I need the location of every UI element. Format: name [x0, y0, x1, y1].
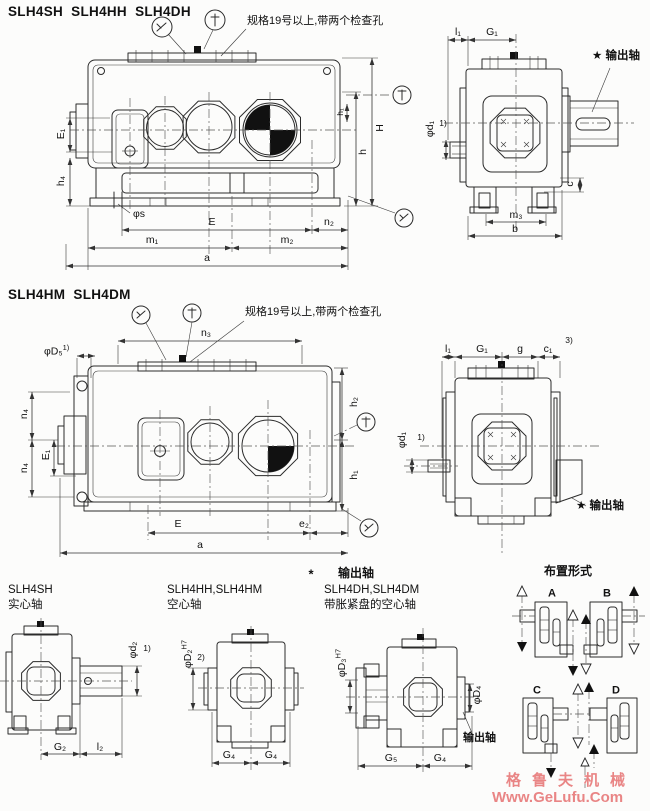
dim-c1: c₁: [544, 344, 553, 355]
col1-model-name: SLH4SH: [8, 585, 53, 597]
output-shaft-section-header: 输出轴: [338, 567, 374, 579]
dim-h1-mid: h₁: [349, 470, 360, 479]
dim-a-mid: a: [197, 540, 203, 551]
inspection-hole-note-top: 规格19号以上,带两个检查孔: [247, 16, 383, 27]
breather-plug-icon: [205, 10, 225, 30]
dim-G1: G₁: [486, 27, 498, 38]
dim-phi-d1-mid: φd₁: [397, 432, 408, 448]
page-title-top: SLH4SH SLH4HH SLH4DH: [8, 5, 191, 19]
watermark-brand: 格鲁夫机械: [506, 773, 636, 788]
catalog-page: SLH4SH SLH4HH SLH4DH 规格19号以上,带两个检查孔 E₁ h…: [0, 0, 650, 811]
oil-level-plug-icon: [393, 86, 411, 104]
inspection-plug-icon: [194, 46, 201, 53]
dim-G1-mid: G₁: [476, 344, 488, 355]
dim-phi-D5: φD₅1): [44, 344, 69, 357]
dim-G4-col3: G₄: [434, 753, 446, 764]
dim-n2: n₂: [324, 217, 334, 228]
footnote-1: 1): [439, 119, 447, 128]
footnote-star: *: [308, 568, 313, 581]
note-leader: [190, 321, 244, 362]
top-side-view-drawing: [66, 10, 413, 270]
arrangement-b-label: B: [603, 589, 611, 600]
arrangement-a-label: A: [548, 589, 556, 600]
dim-l2: l₂: [97, 742, 103, 753]
footnote-1-col1: 1): [143, 644, 151, 653]
dim-n4-bottom: n₄: [19, 463, 30, 473]
dim-phi-d1: φd₁: [425, 121, 436, 137]
solid-shaft-drawing: [0, 618, 142, 760]
oil-plug-icon: [132, 306, 150, 324]
line-art: [0, 0, 650, 811]
note-leader: [221, 29, 246, 56]
dim-G5: G₅: [385, 753, 397, 764]
dim-E: E: [208, 217, 215, 228]
drain-plug-icon: [360, 519, 378, 537]
dim-phi-D2: φD₂H7: [181, 640, 194, 668]
hollow-shaft-drawing: [188, 626, 304, 770]
footnote-2: 2): [197, 653, 205, 662]
breather-plug-icon: [247, 629, 254, 635]
page-title-mid: SLH4HM SLH4DM: [8, 288, 131, 302]
col3-model-name: SLH4DH,SLH4DM: [324, 585, 419, 597]
mid-front-view-drawing: [404, 352, 600, 556]
dim-G4-right: G₄: [265, 750, 277, 761]
dim-phi-d2: φd₂: [128, 642, 139, 659]
oil-level-plug-icon: [357, 413, 375, 431]
dim-h: h: [358, 149, 369, 155]
dim-H: H: [375, 124, 386, 132]
breather-plug-icon: [183, 304, 201, 322]
output-shaft-label-col3: 输出轴: [463, 733, 496, 744]
output-shaft-leader: [592, 68, 610, 112]
col1-shaft-type: 实心轴: [8, 600, 43, 612]
dim-phi-D4: φD₄: [472, 686, 483, 705]
dim-G2: G₂: [54, 742, 66, 753]
dim-E1: E₁: [56, 129, 67, 140]
dim-G4-left: G₄: [223, 750, 235, 761]
dim-h1: h₁: [336, 108, 345, 116]
dim-g: g: [517, 344, 523, 355]
dim-b: b: [512, 224, 518, 235]
mid-side-view-drawing: [28, 304, 378, 557]
dim-e2: e₂: [299, 519, 309, 530]
arrangement-c-label: C: [533, 686, 541, 697]
arrangement-header: 布置形式: [544, 565, 592, 577]
dim-n3: n₃: [201, 328, 211, 339]
breather-plug-icon: [37, 621, 44, 627]
output-shaft-leader: [463, 712, 472, 733]
dim-phi-s: φs: [133, 209, 145, 220]
inspection-plug-icon: [179, 355, 186, 362]
breather-plug-icon: [498, 361, 505, 368]
dim-E-mid: E: [174, 519, 181, 530]
dim-m1: m₁: [146, 235, 158, 246]
watermark-url: Www.GeLufu.Com: [492, 790, 623, 805]
output-shaft-label: ★ 输出轴: [592, 51, 640, 63]
output-shaft-label-mid: ★ 输出轴: [576, 501, 624, 513]
dim-phi-D3: φD₃H7: [335, 649, 348, 677]
dim-E1-mid: E₁: [41, 450, 52, 461]
dim-n4-top: n₄: [19, 409, 30, 419]
dim-h2: h₂: [349, 397, 360, 407]
drain-plug-icon: [395, 209, 413, 227]
footnote-3: 3): [565, 336, 573, 345]
dim-m3: m₃: [509, 210, 522, 221]
dim-h4: h₄: [56, 176, 67, 186]
dim-c: c: [565, 181, 576, 186]
dim-m2: m₂: [281, 235, 294, 246]
inspection-hole-note-mid: 规格19号以上,带两个检查孔: [245, 307, 381, 318]
dim-l1-mid: l₁: [445, 344, 451, 355]
col2-shaft-type: 空心轴: [167, 600, 202, 612]
arrangement-diagrams: [512, 586, 645, 788]
footnote-1-mid: 1): [417, 433, 425, 442]
top-front-view-drawing: [442, 34, 634, 240]
dim-l1: l₁: [455, 27, 461, 38]
oil-plug-icon: [152, 17, 172, 37]
breather-plug-icon: [510, 52, 518, 59]
col2-model-name: SLH4HH,SLH4HM: [167, 585, 262, 597]
dim-a: a: [204, 253, 210, 264]
col3-shaft-type: 带胀紧盘的空心轴: [324, 600, 416, 612]
shrink-disc-shaft-drawing: [345, 628, 482, 772]
arrangement-d-label: D: [612, 686, 620, 697]
